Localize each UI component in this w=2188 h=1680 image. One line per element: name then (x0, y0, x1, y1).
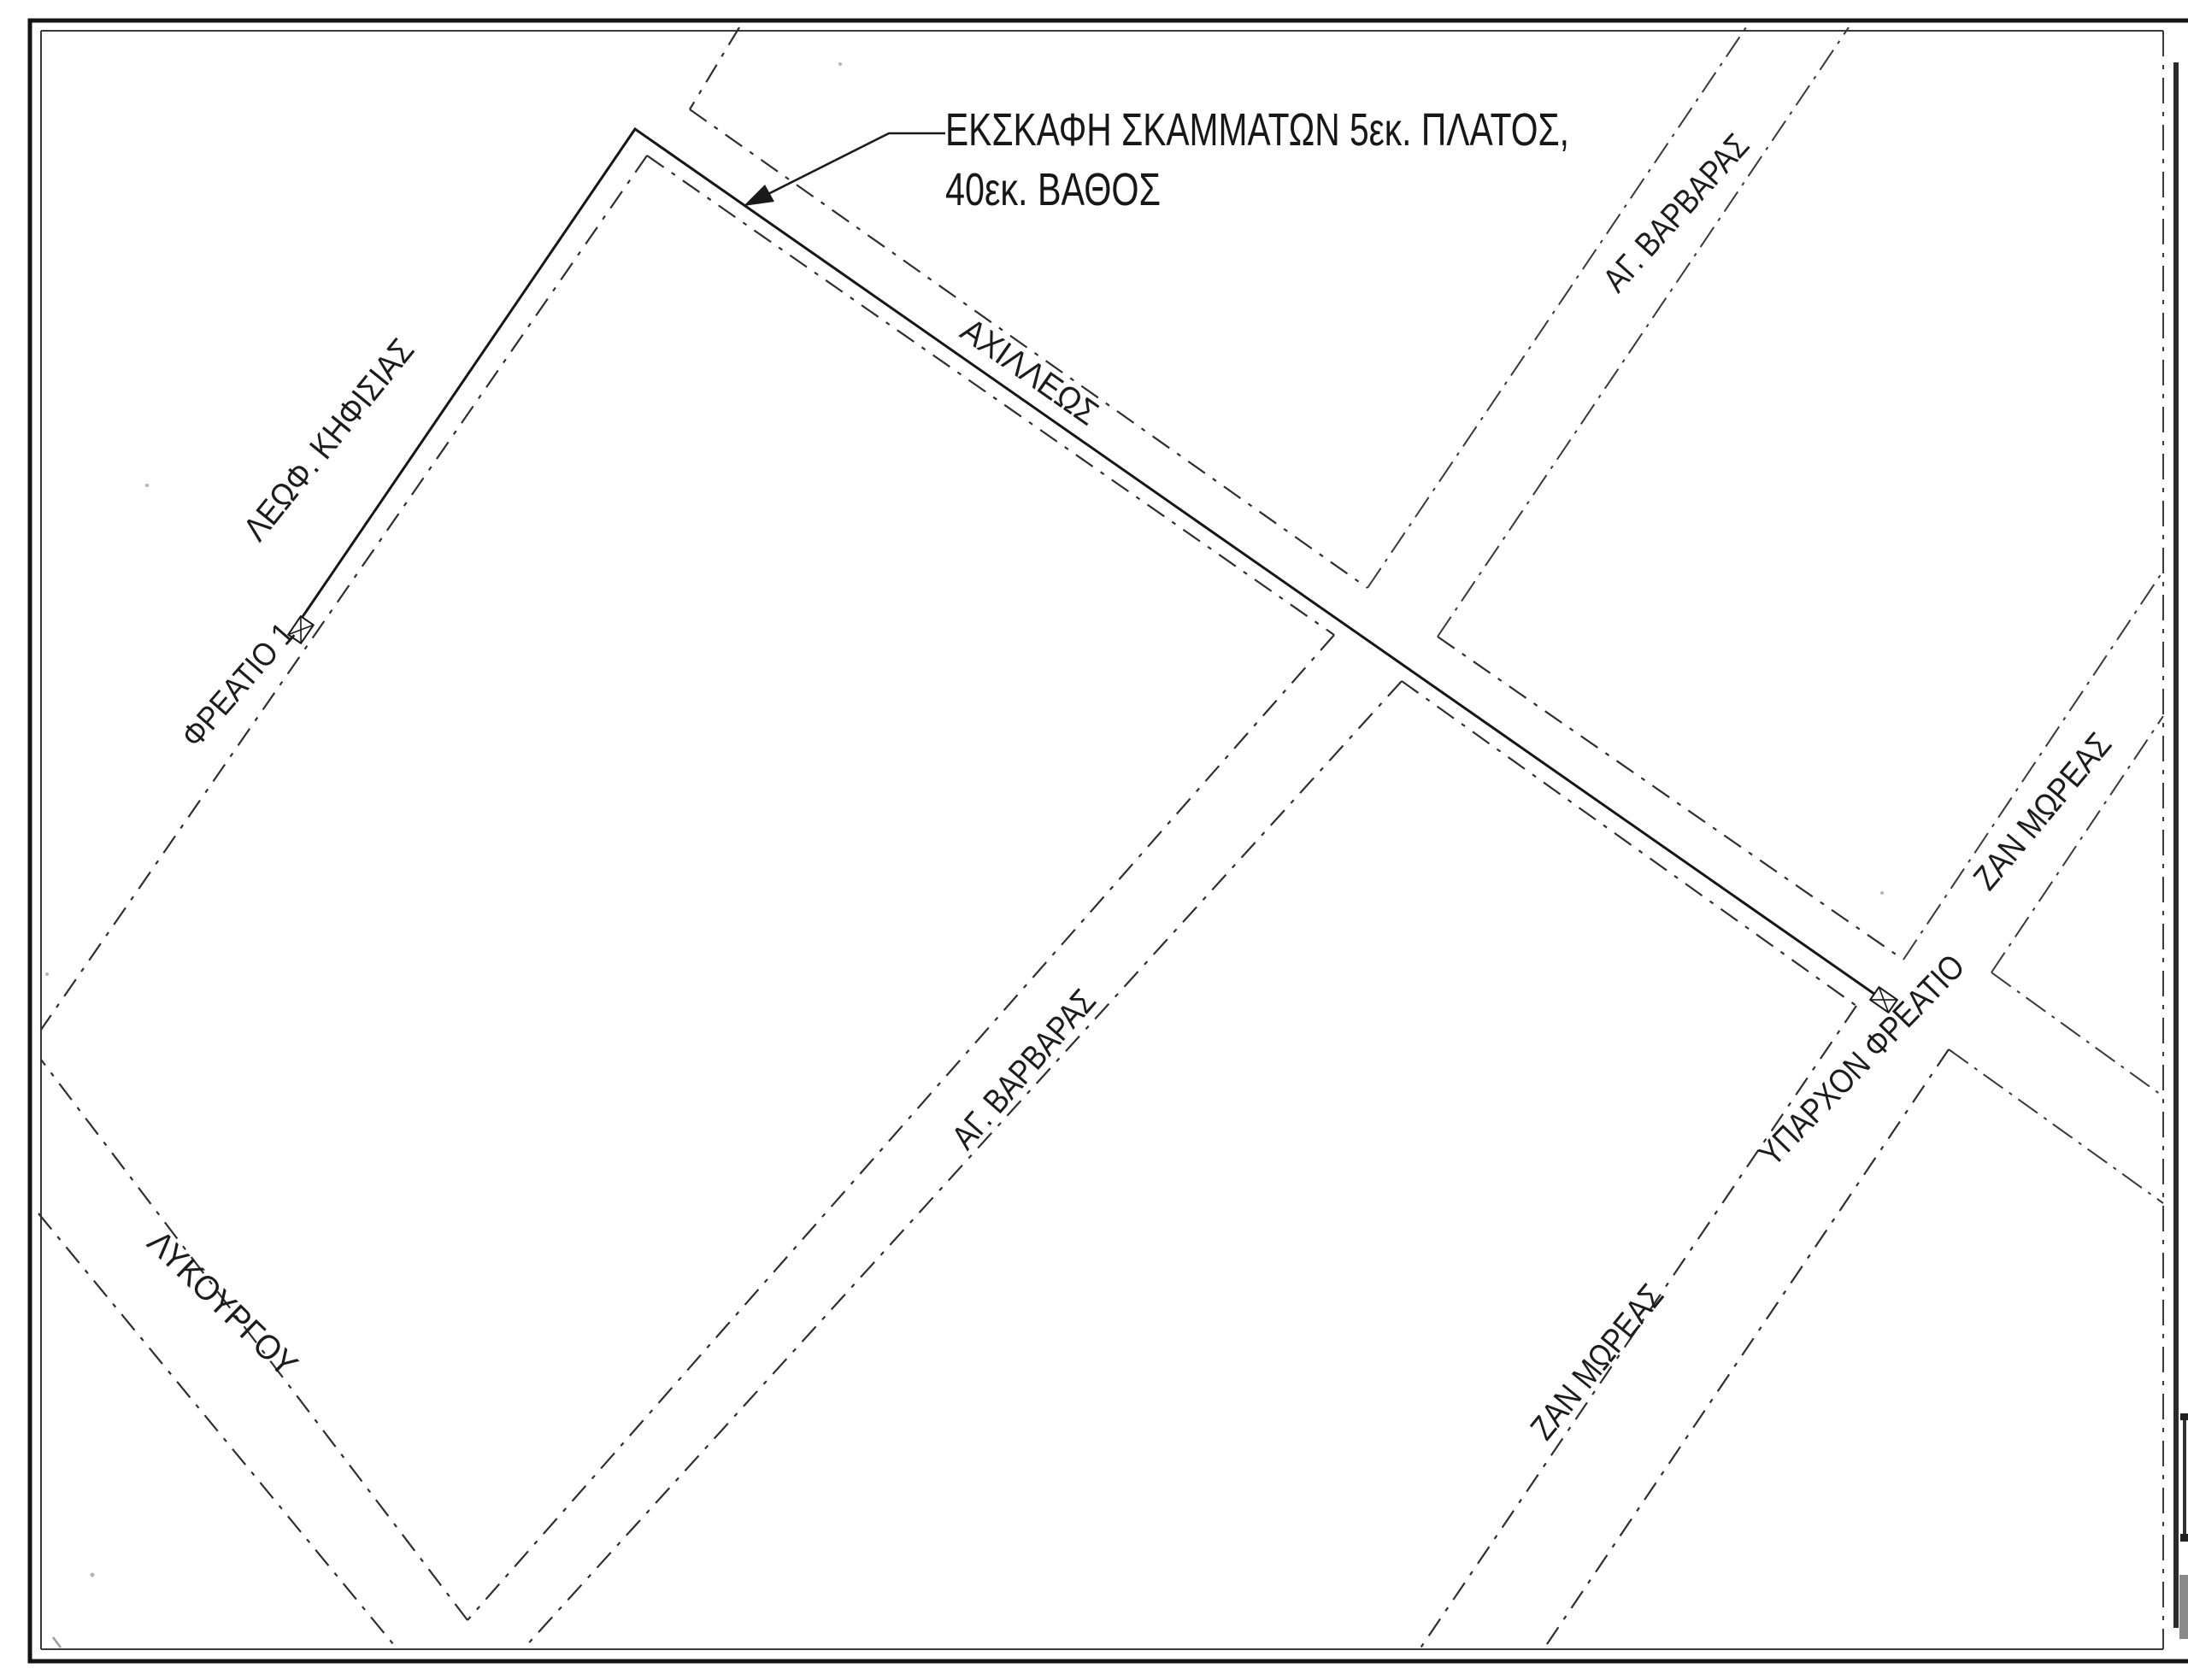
scan-gray-block (2179, 1575, 2188, 1639)
site-plan-page: ΕΚΣΚΑΦΗ ΣΚΑΜΜΑΤΩΝ 5εκ. ΠΛΑΤΟΣ, 40εκ. ΒΑΘ… (0, 0, 2188, 1680)
street-label-agvarvaras-mid: ΑΓ. ΒΑΡΒΑΡΑΣ (944, 982, 1103, 1156)
block-edge-kifisias-side (41, 156, 647, 1030)
paper-speck (45, 972, 49, 976)
annotation-line-1: ΕΚΣΚΑΦΗ ΣΚΑΜΜΑΤΩΝ 5εκ. ΠΛΑΤΟΣ, (945, 104, 1569, 156)
paper-speck (91, 1573, 95, 1577)
street-edges (38, 27, 2163, 1649)
street-label-zanmoreas-bottom: ΖΑΝ ΜΩΡΕΑΣ (1524, 1277, 1672, 1447)
block-edge-axilleos-side-2 (1402, 681, 1856, 1006)
block-edge-axilleos-side (647, 156, 1334, 635)
sheet-border (30, 21, 2188, 1661)
street-edge-zanmoreas-n-upper (1903, 571, 2163, 960)
scan-bracket-bottom-tick (2180, 1534, 2188, 1542)
paper-speck (145, 484, 149, 487)
site-plan-drawing: ΕΚΣΚΑΦΗ ΣΚΑΜΜΑΤΩΝ 5εκ. ΠΛΑΤΟΣ, 40εκ. ΒΑΘ… (0, 0, 2188, 1680)
paper-mark (53, 1637, 61, 1648)
scan-artifacts (45, 62, 2188, 1648)
street-label-zanmoreas-top: ΖΑΝ ΜΩΡΕΑΣ (1967, 725, 2119, 897)
leader-line (748, 133, 945, 204)
block-edge-agvarvaras-side (468, 635, 1334, 1620)
scan-bracket-top-tick (2180, 1413, 2188, 1420)
street-label-lykourgou: ΛΥΚΟΥΡΓΟΥ (140, 1224, 304, 1384)
street-edge-kifisias-north-stub (690, 27, 739, 109)
street-label-kifisias: ΛΕΩΦ. ΚΗΦΙΣΙΑΣ (237, 332, 422, 548)
paper-speck (838, 62, 842, 66)
street-label-axilleos: ΑΧΙΛΛΕΩΣ (954, 311, 1105, 432)
leader-arrowhead-icon (744, 185, 774, 206)
street-edge-axilleos-se-upper (1991, 972, 2163, 1096)
street-edge-axilleos-upper-mid (1438, 637, 1903, 960)
annotation-line-2: 40εκ. ΒΑΘΟΣ (945, 164, 1161, 215)
street-edge-agvarvaras-mid-lower (523, 681, 1402, 1649)
paper-speck (1880, 891, 1884, 895)
border-outer-frame (30, 21, 2188, 1661)
street-label-agvarvaras-top: ΑΓ. ΒΑΡΒΑΡΑΣ (1596, 126, 1756, 299)
manhole-1-label: ΦΡΕΑΤΙΟ 1 (175, 616, 302, 755)
existing-manhole-label: ΥΠΑΡΧΟΝ ΦΡΕΑΤΙΟ (1752, 948, 1972, 1173)
